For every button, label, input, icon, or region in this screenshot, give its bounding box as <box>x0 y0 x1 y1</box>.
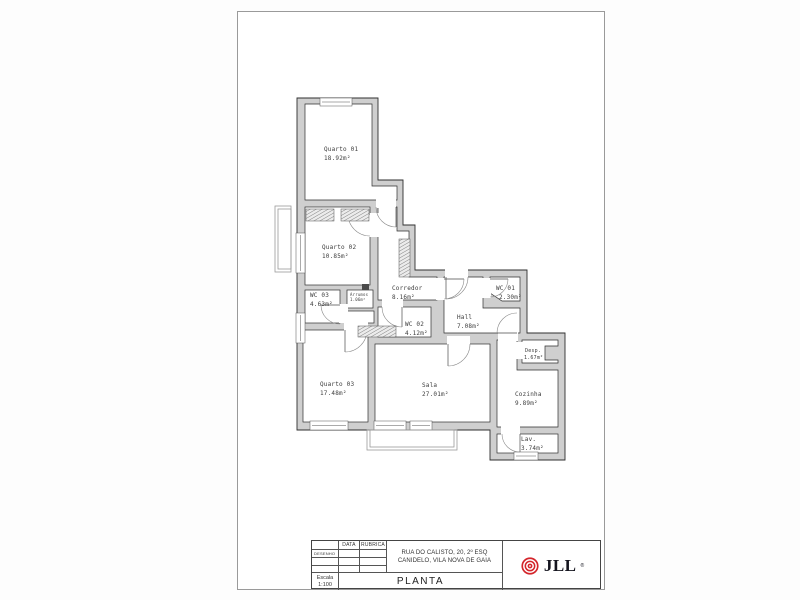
data-column-header: DATA <box>339 541 359 549</box>
address-line-2: CANIDELO, VILA NOVA DE GAIA <box>398 557 491 565</box>
vestibule <box>347 311 374 323</box>
label-corredor: Corredor <box>392 285 423 292</box>
label-hall: Hall <box>457 314 472 321</box>
label-hall-area: 7.08m² <box>457 323 480 330</box>
tb-line <box>312 557 386 558</box>
label-quarto-02-area: 10.85m² <box>322 253 349 260</box>
scale-cell: Escala 1:100 <box>312 573 338 590</box>
duct-block <box>362 284 369 290</box>
label-cozinha: Cozinha <box>515 391 542 398</box>
label-lav: Lav. <box>521 436 536 443</box>
label-wc-03: WC 03 <box>310 292 329 299</box>
project-address: RUA DO CALISTO, 20, 2º ESQ CANIDELO, VIL… <box>387 541 502 572</box>
label-sala-area: 27.01m² <box>422 391 449 398</box>
title-block: DATA RUBRICA DESENHO RUA DO CALISTO, 20,… <box>311 540 601 589</box>
rubrica-column-header: RUBRICA <box>360 541 386 549</box>
label-quarto-01-area: 18.92m² <box>324 155 351 162</box>
label-desp: Desp. <box>525 348 541 354</box>
label-lav-area: 3.74m² <box>521 445 544 452</box>
scale-value: 1:100 <box>318 582 332 589</box>
scale-label: Escala <box>317 575 334 582</box>
label-wc-02: WC 02 <box>405 321 424 328</box>
label-quarto-03: Quarto 03 <box>320 381 354 388</box>
registered-mark: ® <box>581 563 585 569</box>
label-desp-area: 1.67m² <box>524 355 543 361</box>
drawing-title: PLANTA <box>339 573 502 590</box>
label-wc-01: WC 01 <box>496 285 515 292</box>
logo-cell: JLL ® <box>503 541 601 590</box>
label-quarto-02: Quarto 02 <box>322 244 356 251</box>
desenho-row-label: DESENHO <box>312 549 338 557</box>
room-quarto-03 <box>303 330 368 422</box>
jll-rings-icon <box>520 556 540 576</box>
floor-plan: Quarto 01 18.92m² Quarto 02 10.85m² WC 0… <box>0 0 800 600</box>
label-wc-01-area: 2.30m² <box>499 294 522 301</box>
jll-logo-text: JLL <box>544 557 577 574</box>
label-arrumos-area: 1.06m² <box>350 297 366 302</box>
label-sala: Sala <box>422 382 437 389</box>
label-cozinha-area: 9.89m² <box>515 400 538 407</box>
label-quarto-03-area: 17.48m² <box>320 390 347 397</box>
label-quarto-01: Quarto 01 <box>324 146 358 153</box>
label-corredor-area: 8.16m² <box>392 294 415 301</box>
tb-line <box>312 565 386 566</box>
label-wc-03-area: 4.63m² <box>310 301 333 308</box>
label-wc-02-area: 4.12m² <box>405 330 428 337</box>
address-line-1: RUA DO CALISTO, 20, 2º ESQ <box>401 549 487 557</box>
jll-logo: JLL ® <box>520 556 584 576</box>
